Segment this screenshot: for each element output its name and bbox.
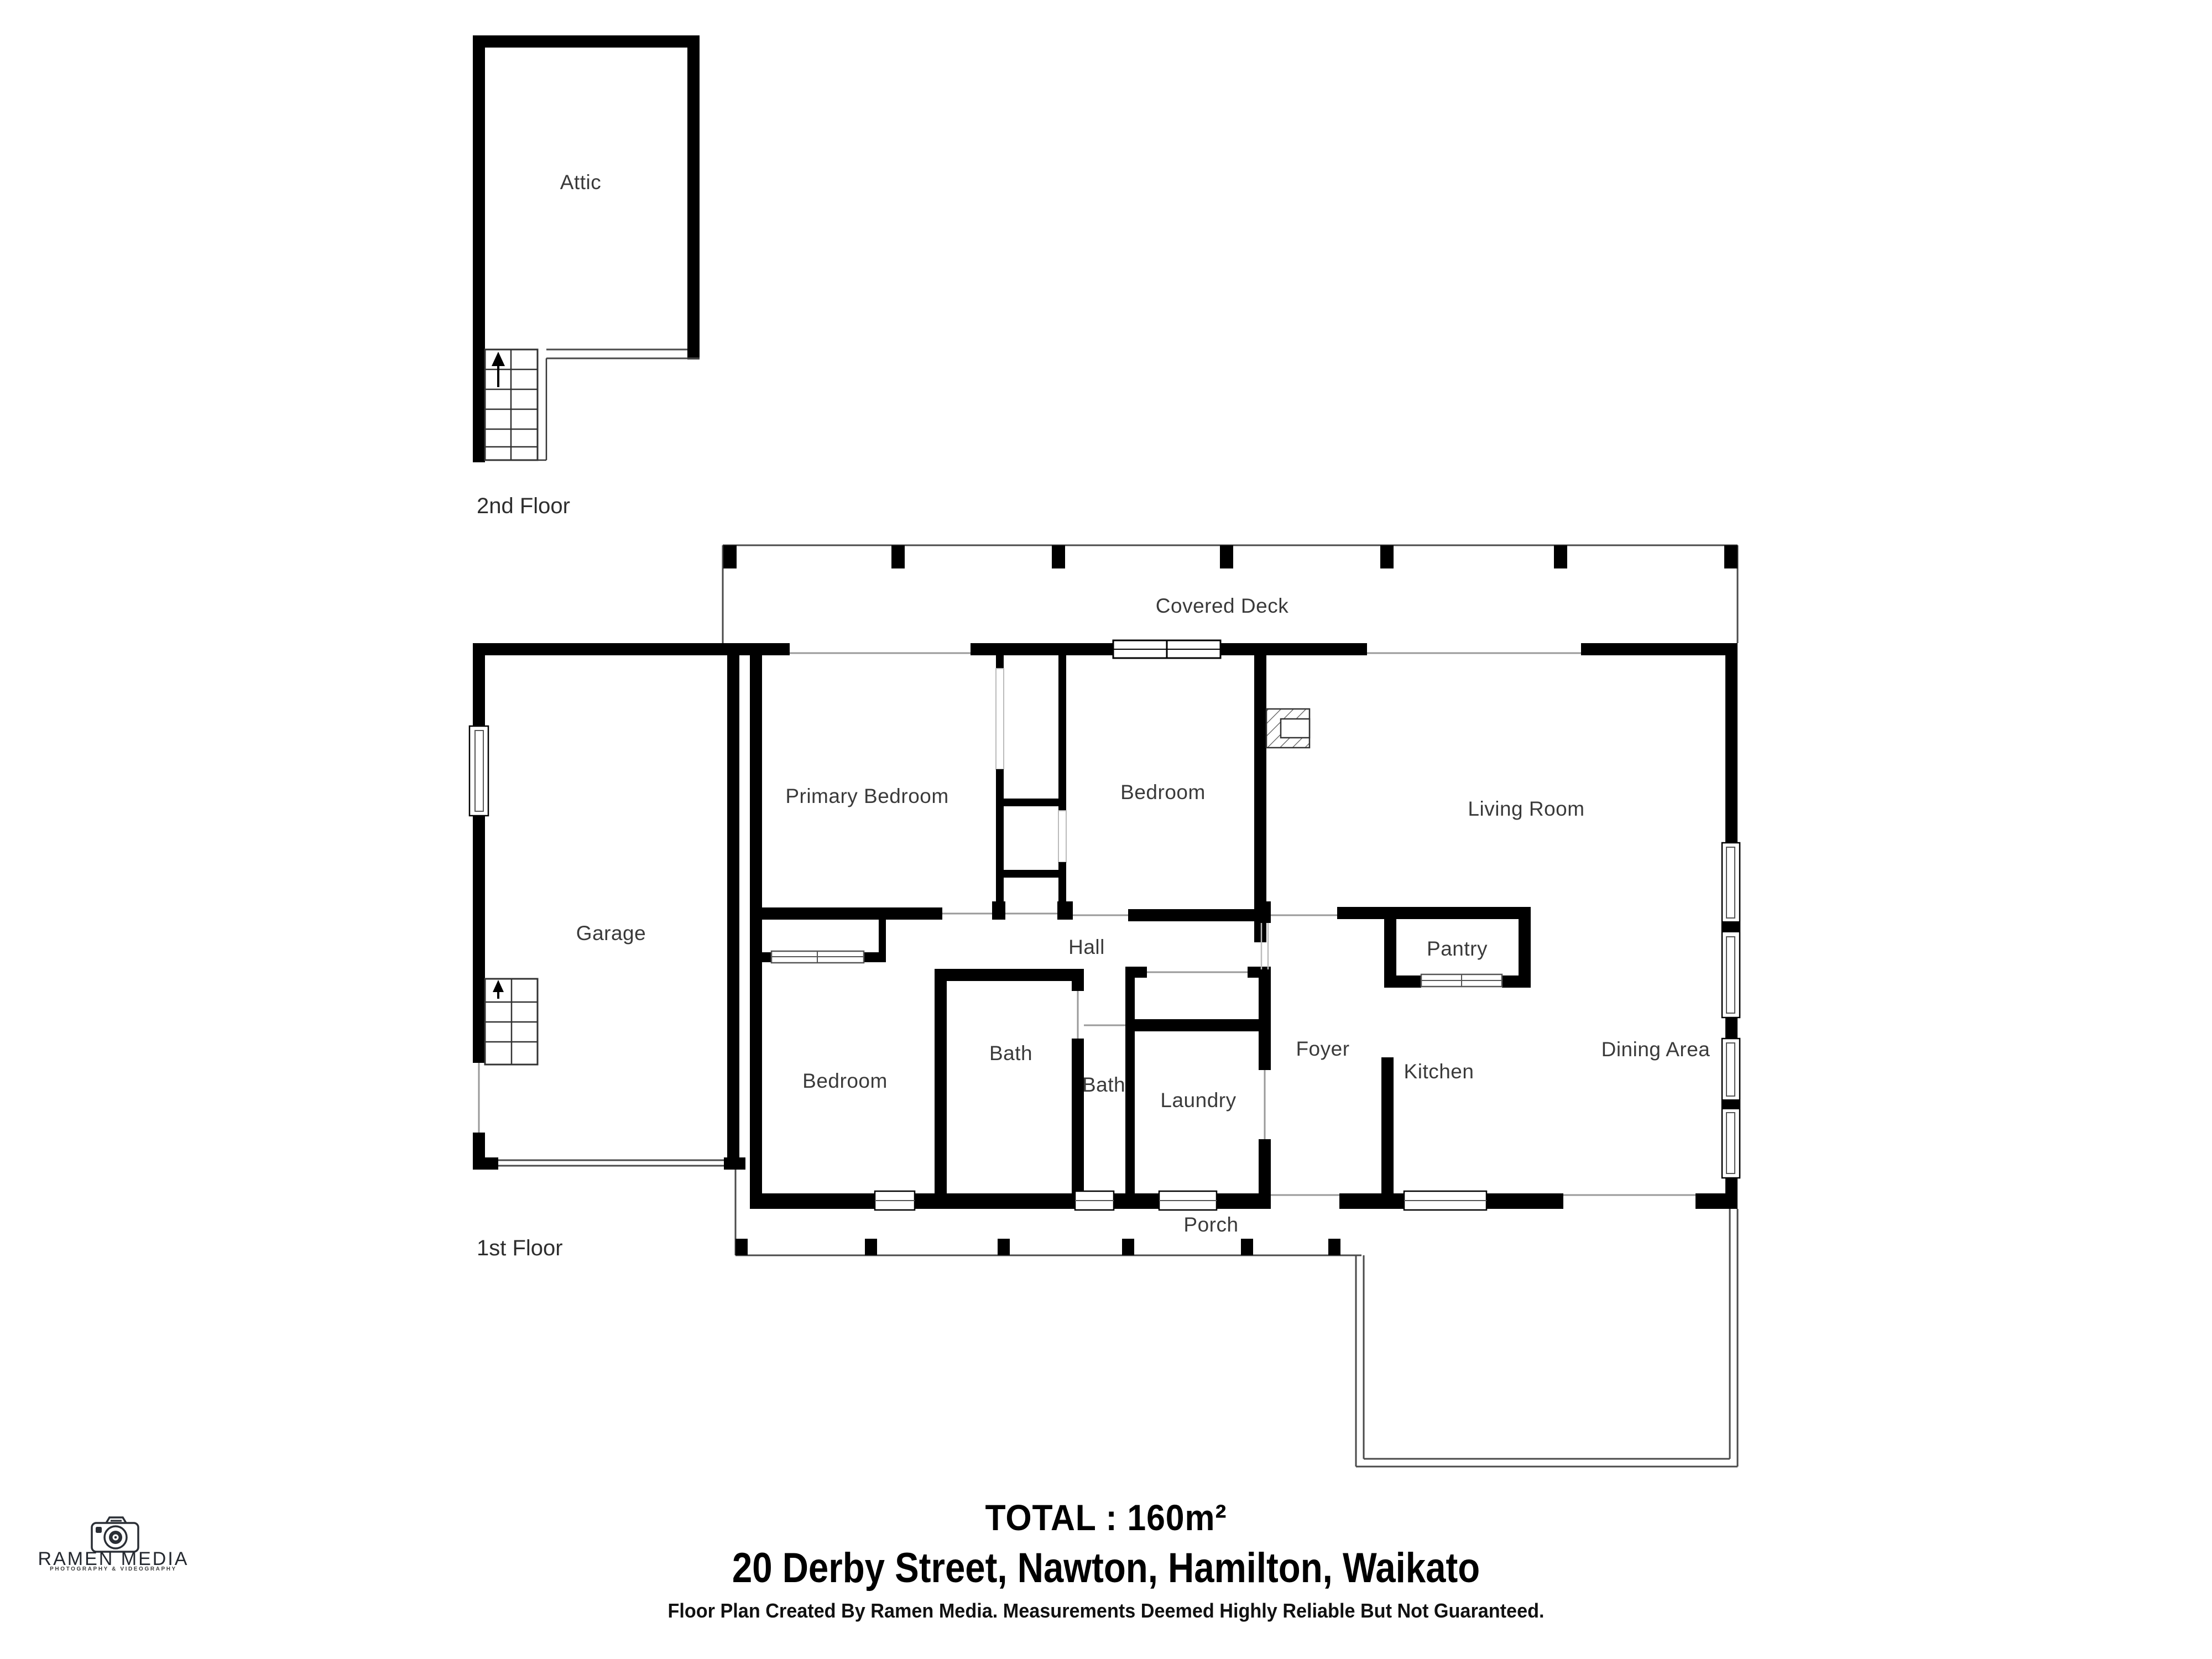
kitchen-divider-wall	[1381, 1057, 1394, 1197]
floor-label-1st: 1st Floor	[477, 1236, 563, 1261]
room-label-attic: Attic	[560, 171, 601, 194]
room-label-dining-area: Dining Area	[1601, 1038, 1710, 1061]
fireplace	[1266, 709, 1310, 748]
window	[1075, 1191, 1114, 1210]
garage-door	[498, 1160, 724, 1166]
porch-extension-outline	[1356, 1209, 1738, 1467]
house-bottom-wall	[762, 1191, 1738, 1210]
window	[469, 726, 488, 816]
sliding-door	[1421, 974, 1502, 987]
window	[875, 1191, 915, 1210]
foyer-left-wall	[1259, 901, 1271, 1197]
room-label-foyer: Foyer	[1296, 1037, 1349, 1061]
garage-walls	[469, 655, 745, 1170]
attic-stairs	[485, 349, 546, 460]
sliding-door	[771, 951, 864, 963]
window	[1159, 1191, 1217, 1210]
room-label-garage: Garage	[576, 922, 646, 945]
room-label-covered-deck: Covered Deck	[1156, 594, 1288, 618]
room-label-hall: Hall	[1068, 936, 1105, 959]
bedroom-closet	[762, 920, 886, 963]
room-label-kitchen: Kitchen	[1404, 1060, 1474, 1083]
right-outer-wall	[1722, 643, 1740, 1209]
room-label-bedroom-top: Bedroom	[1120, 781, 1206, 804]
total-area-text: TOTAL : 160m²	[985, 1496, 1227, 1538]
floor-label-2nd: 2nd Floor	[477, 494, 570, 519]
room-label-laundry: Laundry	[1160, 1089, 1236, 1112]
address-text: 20 Derby Street, Nawton, Hamilton, Waika…	[732, 1544, 1480, 1592]
floor-plan-drawing	[0, 0, 2212, 1659]
closet-strip-walls	[992, 655, 1073, 920]
room-label-pantry: Pantry	[1427, 937, 1488, 961]
room-label-living-room: Living Room	[1468, 797, 1584, 821]
slider-window	[1113, 640, 1220, 658]
interior-left-wall	[750, 655, 762, 1209]
disclaimer-text: Floor Plan Created By Ramen Media. Measu…	[667, 1599, 1544, 1623]
room-label-bath-main: Bath	[989, 1042, 1032, 1065]
room-label-primary-bedroom: Primary Bedroom	[785, 785, 948, 808]
floor-plan-page: Attic 2nd Floor Covered Deck Primary Bed…	[0, 0, 2212, 1659]
room-label-porch: Porch	[1183, 1213, 1238, 1237]
house-top-wall	[473, 640, 1738, 658]
logo-tagline-text: PHOTOGRAPHY & VIDEOGRAPHY	[50, 1566, 177, 1572]
room-label-bath-small: Bath	[1082, 1073, 1125, 1097]
window	[1404, 1191, 1486, 1210]
garage-stairs	[485, 979, 538, 1065]
primary-bedroom-walls	[762, 907, 993, 920]
window	[1722, 1039, 1740, 1178]
window	[1722, 843, 1740, 1018]
room-label-bedroom-bottom: Bedroom	[802, 1070, 888, 1093]
